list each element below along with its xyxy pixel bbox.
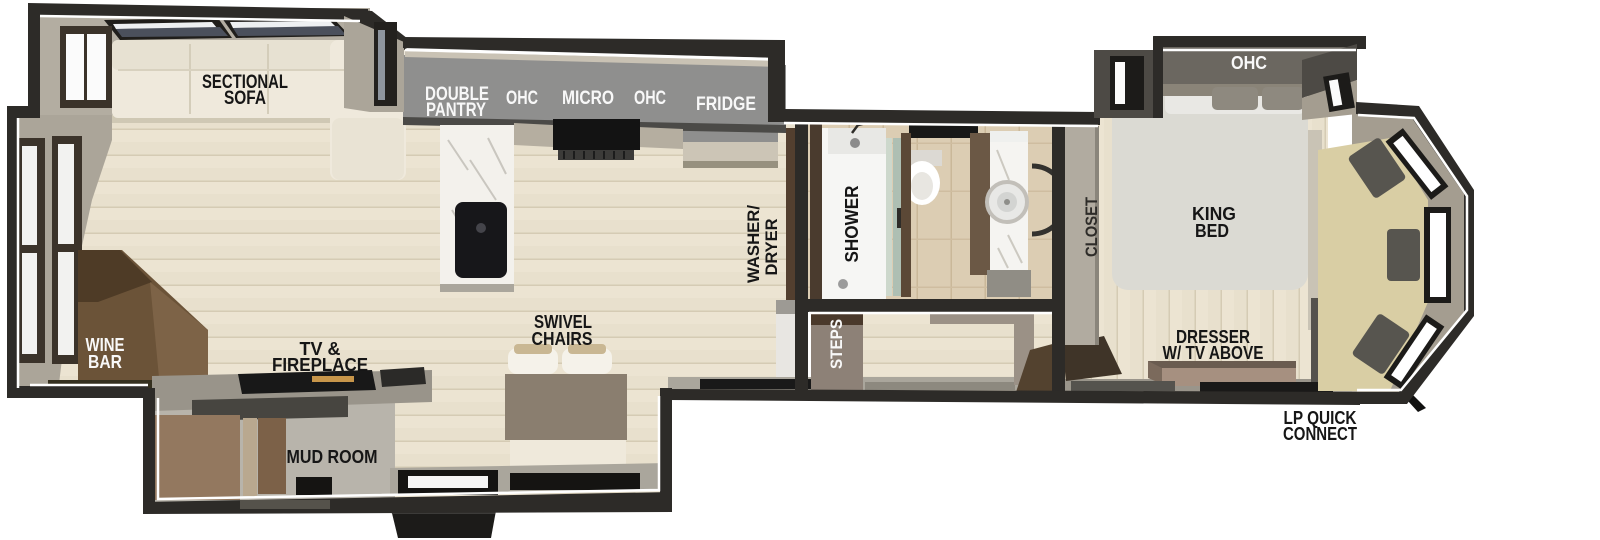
svg-text:CLOSET: CLOSET: [1082, 196, 1101, 257]
svg-text:BAR: BAR: [88, 352, 122, 372]
svg-text:OHC: OHC: [1231, 53, 1267, 73]
svg-text:BED: BED: [1195, 221, 1229, 241]
svg-text:WASHER/: WASHER/: [744, 205, 763, 283]
svg-text:W/ TV ABOVE: W/ TV ABOVE: [1163, 343, 1264, 363]
svg-text:CHAIRS: CHAIRS: [532, 329, 593, 349]
svg-text:STEPS: STEPS: [827, 319, 846, 369]
svg-text:SHOWER: SHOWER: [842, 185, 862, 262]
svg-text:SOFA: SOFA: [224, 88, 266, 109]
svg-text:OHC: OHC: [506, 88, 538, 109]
svg-text:FIREPLACE: FIREPLACE: [272, 355, 368, 375]
svg-text:FRIDGE: FRIDGE: [696, 94, 756, 115]
svg-text:DRYER: DRYER: [762, 219, 781, 276]
svg-text:CONNECT: CONNECT: [1283, 424, 1357, 444]
svg-text:OHC: OHC: [634, 88, 666, 109]
svg-text:MUD ROOM: MUD ROOM: [287, 447, 378, 467]
svg-text:MICRO: MICRO: [562, 88, 614, 109]
svg-text:PANTRY: PANTRY: [426, 100, 486, 121]
